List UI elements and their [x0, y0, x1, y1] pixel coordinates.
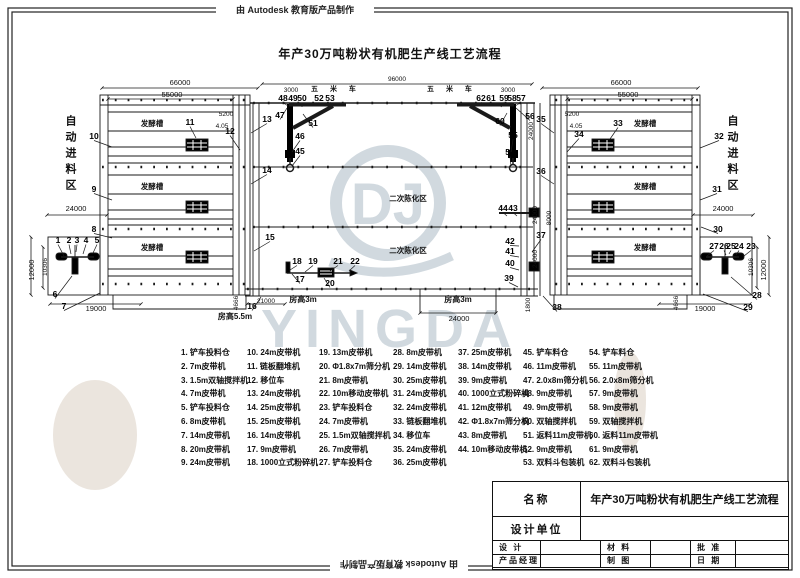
dimension-label: 二次陈化区 — [389, 193, 427, 203]
legend-item: 36. 25m皮带机 — [393, 456, 458, 470]
legend-item: 42. Φ1.8x7m筛分机 — [458, 415, 523, 429]
titleblock-design-value — [541, 541, 601, 555]
legend-item: 7. 14m皮带机 — [181, 429, 247, 443]
legend-item: 59. 双轴搅拌机 — [589, 415, 661, 429]
part-number-label: 15 — [265, 232, 275, 242]
legend-item: 61. 9m皮带机 — [589, 443, 661, 457]
zone-label-auto-feed-right: 自动进料区 — [724, 115, 740, 195]
legend-item: 22. 10m移动皮带机 — [319, 387, 393, 401]
part-number-label: 13 — [262, 114, 272, 124]
legend-item: 31. 24m皮带机 — [393, 387, 458, 401]
legend-item: 30. 25m皮带机 — [393, 374, 458, 388]
part-number-label: 21 — [333, 256, 343, 266]
leader-line — [744, 251, 751, 257]
legend-item: 15. 25m皮带机 — [247, 415, 319, 429]
legend-item: 28. 8m皮带机 — [393, 346, 458, 360]
dimension-label: 5200 — [565, 111, 580, 118]
legend-item: 27. 铲车投料仓 — [319, 456, 393, 470]
cad-canvas: { "banner": { "top": "由 Autodesk 教育版产品制作… — [0, 0, 800, 578]
leader-line — [509, 283, 518, 288]
leader-line — [190, 127, 196, 139]
legend-item: 1. 铲车投料仓 — [181, 346, 247, 360]
legend-item: 20. Φ1.8x7m筛分机 — [319, 360, 393, 374]
part-number-label: 37 — [536, 230, 546, 240]
legend-column: 54. 铲车料仓55. 11m皮带机56. 2.0x8m筛分机57. 9m皮带机… — [589, 346, 661, 470]
dimension-label: 发酵槽 — [140, 181, 164, 191]
dimension-label: 1800 — [525, 297, 532, 312]
dimension-label: 五 米 车 — [311, 84, 361, 93]
dimension-label: 19000 — [695, 304, 716, 313]
legend-item: 4. 7m皮带机 — [181, 387, 247, 401]
part-number-label: 62 — [476, 93, 486, 103]
part-number-label: 23 — [746, 241, 756, 251]
part-number-label: 53 — [325, 93, 335, 103]
part-number-label: 19 — [308, 256, 318, 266]
legend-item: 55. 11m皮带机 — [589, 360, 661, 374]
legend-item: 16. 14m皮带机 — [247, 429, 319, 443]
part-number-label: 42 — [505, 236, 515, 246]
legend-column: 28. 8m皮带机29. 14m皮带机30. 25m皮带机31. 24m皮带机3… — [393, 346, 458, 470]
legend-item: 13. 24m皮带机 — [247, 387, 319, 401]
dimension-label: 发酵槽 — [140, 118, 164, 128]
zone-label-auto-feed-left: 自动进料区 — [62, 115, 78, 195]
legend-column: 37. 25m皮带机38. 14m皮带机39. 9m皮带机40. 1000立式粉… — [458, 346, 523, 470]
part-number-label: 61 — [486, 93, 496, 103]
dimension-label: 24000 — [532, 206, 539, 224]
part-number-label: 40 — [505, 258, 515, 268]
legend-item: 41. 12m皮带机 — [458, 401, 523, 415]
legend-item: 24. 7m皮带机 — [319, 415, 393, 429]
part-number-label: 30 — [713, 224, 723, 234]
legend-item: 10. 24m皮带机 — [247, 346, 319, 360]
part-number-label: 34 — [574, 129, 584, 139]
part-number-label: 52 — [314, 93, 324, 103]
part-number-label: 18 — [292, 256, 302, 266]
titleblock-name-value: 年产30万吨粉状有机肥生产线工艺流程 — [581, 482, 788, 517]
legend-item: 11. 链板翻堆机 — [247, 360, 319, 374]
titleblock-draft-value — [651, 555, 691, 569]
legend-item: 6. 8m皮带机 — [181, 415, 247, 429]
leader-line — [230, 136, 240, 151]
dimension-label: 发酵槽 — [140, 242, 164, 252]
legend-item: 54. 铲车料仓 — [589, 346, 661, 360]
legend-item: 51. 返料11m皮带机 — [523, 429, 589, 443]
legend-item: 14. 25m皮带机 — [247, 401, 319, 415]
part-number-label: 9 — [92, 184, 97, 194]
legend-item: 39. 9m皮带机 — [458, 374, 523, 388]
dimension-label: 66000 — [611, 78, 632, 87]
dimension-label: 房高3m — [444, 294, 472, 304]
legend-item: 37. 25m皮带机 — [458, 346, 523, 360]
part-number-label: 47 — [275, 110, 285, 120]
dimension-label: 发酵槽 — [633, 181, 657, 191]
part-number-label: 41 — [505, 246, 515, 256]
titleblock-draft-label: 制 图 — [601, 555, 651, 569]
dimension-label: 24000 — [66, 204, 87, 213]
dimension-label: 24000 — [532, 250, 539, 268]
part-number-label: 12 — [225, 126, 235, 136]
leader-line — [94, 141, 112, 148]
titleblock-design-unit-label: 设计单位 — [493, 517, 581, 541]
part-number-label: 10 — [89, 131, 99, 141]
leader-line — [729, 251, 731, 255]
legend-item: 44. 10m移动皮带机 — [458, 443, 523, 457]
titleblock-date-value — [736, 555, 788, 569]
dimension-label: 55000 — [618, 90, 639, 99]
legend-item: 45. 铲车料仓 — [523, 346, 589, 360]
dimension-label: 55000 — [162, 90, 183, 99]
legend-item: 40. 1000立式粉碎机 — [458, 387, 523, 401]
leader-line — [76, 245, 77, 253]
part-number-label: 8 — [92, 224, 97, 234]
legend-item: 17. 9m皮带机 — [247, 443, 319, 457]
legend-column: 1. 铲车投料仓2. 7m皮带机3. 1.5m双轴搅拌机4. 7m皮带机5. 铲… — [181, 346, 247, 470]
part-number-label: 60 — [495, 116, 505, 126]
legend-item: 56. 2.0x8m筛分机 — [589, 374, 661, 388]
titleblock-pm-value — [541, 555, 601, 569]
dimension-label: 24000 — [449, 314, 470, 323]
legend-item: 48. 9m皮带机 — [523, 387, 589, 401]
legend-column: 19. 13m皮带机20. Φ1.8x7m筛分机21. 8m皮带机22. 10m… — [319, 346, 393, 470]
legend-item: 53. 双料斗包装机 — [523, 456, 589, 470]
leader-line — [610, 128, 618, 140]
part-number-label: 44 — [498, 203, 508, 213]
legend-item: 21. 8m皮带机 — [319, 374, 393, 388]
legend-item: 9. 24m皮带机 — [181, 456, 247, 470]
part-number-label: 2 — [67, 235, 72, 245]
legend-item: 18. 1000立式粉碎机 — [247, 456, 319, 470]
legend-item: 47. 2.0x8m筛分机 — [523, 374, 589, 388]
leader-line — [700, 194, 717, 201]
legend-item: 62. 双料斗包装机 — [589, 456, 661, 470]
dimension-label: 房高3m — [289, 294, 317, 304]
titleblock-material-label: 材 料 — [601, 541, 651, 555]
part-number-label: 59 — [499, 93, 509, 103]
part-number-label: 6 — [53, 289, 58, 299]
part-number-label: 28 — [752, 290, 762, 300]
legend-item: 25. 1.5m双轴搅拌机 — [319, 429, 393, 443]
legend-item: 60. 返料11m皮带机 — [589, 429, 661, 443]
dimension-label: 发酵槽 — [633, 242, 657, 252]
part-number-label: 43 — [508, 203, 518, 213]
legend-item: 2. 7m皮带机 — [181, 360, 247, 374]
part-number-label: 1 — [56, 235, 61, 245]
dimension-label: 96000 — [388, 76, 406, 83]
legend-item: 49. 9m皮带机 — [523, 401, 589, 415]
legend-item: 58. 9m皮带机 — [589, 401, 661, 415]
titleblock-approve-value — [736, 541, 788, 555]
titleblock-approve-label: 批 准 — [691, 541, 736, 555]
part-number-label: 39 — [504, 273, 514, 283]
legend-item: 50. 双轴搅拌机 — [523, 415, 589, 429]
part-number-label: 29 — [743, 302, 753, 312]
part-number-label: 22 — [350, 256, 360, 266]
legend-item: 5. 铲车投料仓 — [181, 401, 247, 415]
part-number-label: 17 — [295, 274, 305, 284]
legend-item: 3. 1.5m双轴搅拌机 — [181, 374, 247, 388]
part-number-label: 11 — [186, 117, 195, 127]
legend-item: 57. 9m皮带机 — [589, 387, 661, 401]
leader-line — [94, 194, 112, 201]
dimension-label: 66000 — [170, 78, 191, 87]
dimension-label: 5200 — [219, 111, 234, 118]
part-number-label: 50 — [297, 93, 307, 103]
legend-item: 33. 链板翻堆机 — [393, 415, 458, 429]
dimension-label: 24000 — [713, 204, 734, 213]
dimension-label: 19000 — [86, 304, 107, 313]
leader-line — [541, 176, 554, 185]
drawing-title: 年产30万吨粉状有机肥生产线工艺流程 — [200, 45, 580, 62]
titleblock-name-label: 名称 — [493, 482, 581, 517]
part-number-label: 35 — [536, 114, 546, 124]
part-number-label: 16 — [247, 301, 257, 311]
legend-item: 26. 7m皮带机 — [319, 443, 393, 457]
dimension-label: 房高5.5m — [218, 311, 252, 321]
legend-column: 45. 铲车料仓46. 11m皮带机47. 2.0x8m筛分机48. 9m皮带机… — [523, 346, 589, 470]
legend-item: 23. 铲车投料仓 — [319, 401, 393, 415]
part-number-label: 32 — [714, 131, 724, 141]
dimension-label: 12000 — [759, 260, 768, 281]
part-number-label: 31 — [712, 184, 722, 194]
part-number-label: 54 — [505, 147, 515, 157]
dimension-label: 4666 — [233, 295, 240, 310]
leader-line — [69, 245, 71, 255]
legend-item: 35. 24m皮带机 — [393, 443, 458, 457]
dimension-label: 24000 — [528, 122, 535, 140]
part-number-label: 3 — [75, 235, 80, 245]
dimension-label: 二次陈化区 — [389, 245, 427, 255]
legend-item: 32. 24m皮带机 — [393, 401, 458, 415]
leader-line — [254, 242, 270, 252]
part-number-label: 7 — [62, 301, 67, 311]
title-block: 名称 年产30万吨粉状有机肥生产线工艺流程 设计单位 设 计 材 料 批 准 产… — [492, 481, 789, 570]
leader-line — [541, 124, 554, 134]
legend-item: 38. 14m皮带机 — [458, 360, 523, 374]
autodesk-education-banner-bottom: 由 Autodesk 教育版产品制作 — [330, 558, 468, 571]
equipment-legend: 1. 铲车投料仓2. 7m皮带机3. 1.5m双轴搅拌机4. 7m皮带机5. 铲… — [181, 346, 661, 470]
part-number-label: 20 — [325, 278, 335, 288]
part-number-label: 36 — [536, 166, 546, 176]
legend-item: 43. 8m皮带机 — [458, 429, 523, 443]
titleblock-pm-label: 产品经理 — [493, 555, 541, 569]
part-number-label: 51 — [308, 118, 318, 128]
dimension-label: 4666 — [673, 295, 680, 310]
legend-item: 8. 20m皮带机 — [181, 443, 247, 457]
legend-item: 12. 移位车 — [247, 374, 319, 388]
part-number-label: 46 — [295, 131, 305, 141]
legend-item: 52. 9m皮带机 — [523, 443, 589, 457]
legend-column: 10. 24m皮带机11. 链板翻堆机12. 移位车13. 24m皮带机14. … — [247, 346, 319, 470]
part-number-label: 26 — [719, 241, 729, 251]
dimension-label: 发酵槽 — [633, 118, 657, 128]
titleblock-design-label: 设 计 — [493, 541, 541, 555]
dimension-label: 8000 — [546, 210, 553, 225]
legend-item: 46. 11m皮带机 — [523, 360, 589, 374]
legend-item: 29. 14m皮带机 — [393, 360, 458, 374]
titleblock-material-value — [651, 541, 691, 555]
leader-line — [567, 139, 579, 153]
leader-line — [93, 245, 97, 254]
part-number-label: 27 — [709, 241, 719, 251]
part-number-label: 45 — [295, 146, 305, 156]
leader-line — [83, 245, 86, 255]
leader-line — [700, 141, 719, 149]
leader-line — [305, 266, 313, 273]
part-number-label: 56 — [525, 111, 535, 121]
part-number-label: 4 — [84, 235, 89, 245]
dimension-label: 五 米 车 — [427, 84, 477, 93]
dimension-label: 10306 — [748, 258, 755, 276]
part-number-label: 5 — [95, 235, 100, 245]
leader-line — [290, 266, 297, 271]
part-number-label: 38 — [552, 302, 562, 312]
legend-item: 34. 移位车 — [393, 429, 458, 443]
part-number-label: 14 — [262, 165, 272, 175]
titleblock-date-label: 日 期 — [691, 555, 736, 569]
legend-item: 19. 13m皮带机 — [319, 346, 393, 360]
autodesk-education-banner-top: 由 Autodesk 教育版产品制作 — [216, 3, 374, 16]
part-number-label: 33 — [613, 118, 623, 128]
dimension-label: 10306 — [42, 258, 49, 276]
titleblock-design-unit-value — [581, 517, 788, 541]
part-number-label: 55 — [508, 130, 518, 140]
part-number-label: 57 — [516, 93, 526, 103]
part-number-label: 48 — [278, 93, 288, 103]
dimension-label: 12000 — [27, 260, 36, 281]
